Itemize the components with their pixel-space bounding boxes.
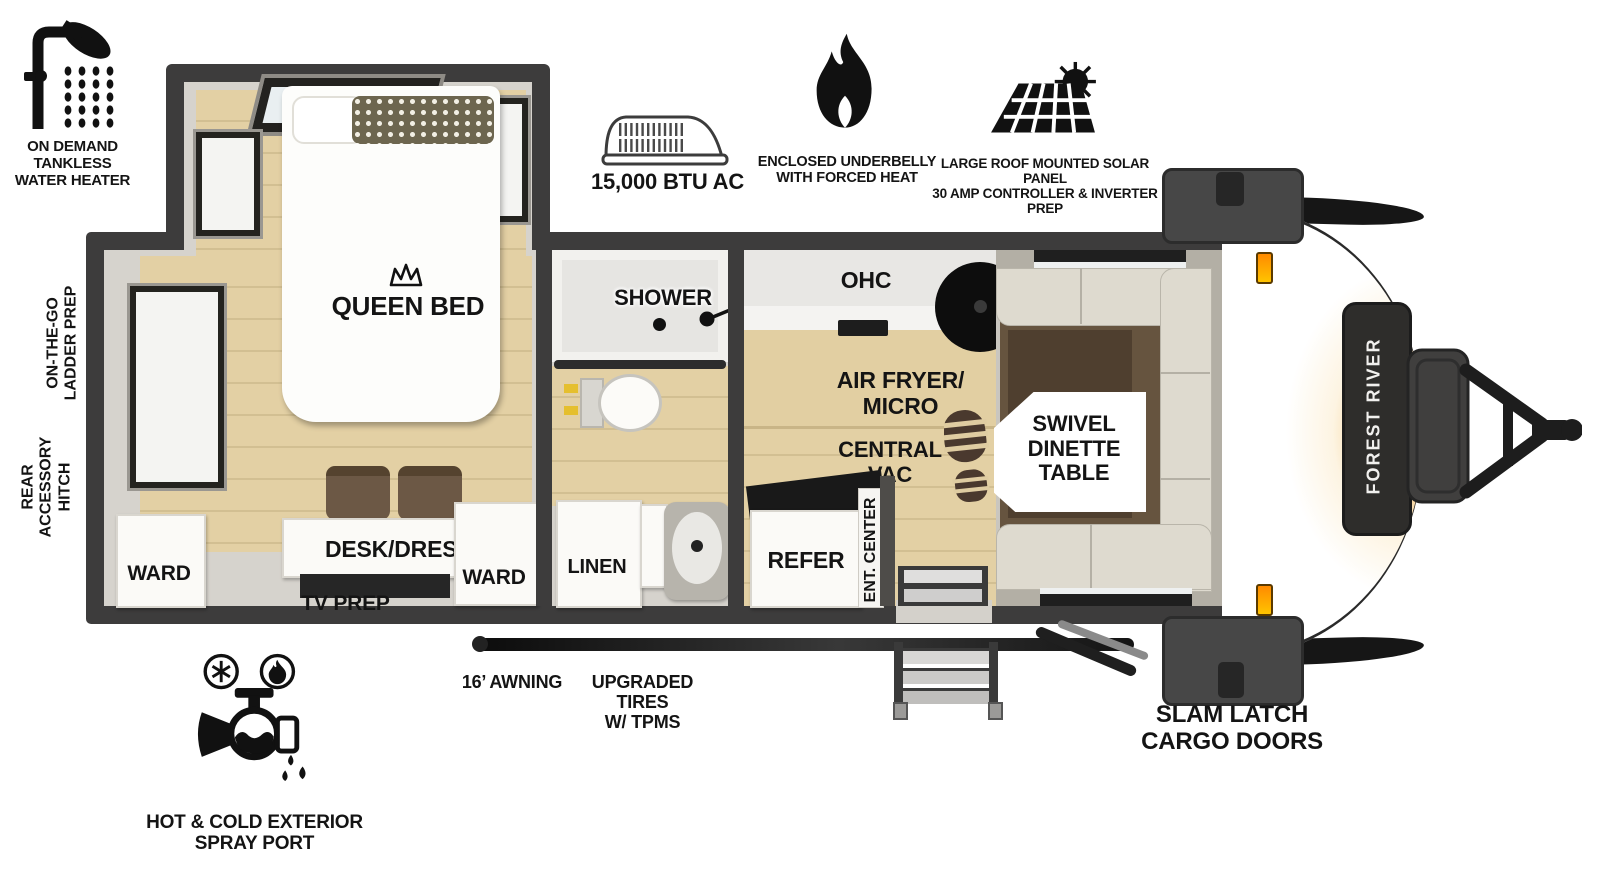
cargo-doors-label: SLAM LATCH CARGO DOORS [1082, 702, 1382, 756]
tankless-water-heater-icon [24, 14, 124, 134]
linen-label: LINEN [558, 556, 636, 578]
queen-bed-label: QUEEN BED [318, 292, 498, 321]
spray-port-icon [196, 650, 322, 790]
step-tread-2 [903, 668, 989, 684]
step-rail-left [894, 642, 903, 704]
step-rail-right [989, 642, 998, 704]
dinette-window-top [1034, 250, 1186, 268]
ent-center-wall [880, 476, 895, 606]
wardrobe-right [454, 502, 538, 606]
ent-center-label: ENT. CENTER [862, 483, 880, 618]
towel-bar-1 [564, 384, 578, 393]
ladder-prep-label: ON-THE-GO LADDER PREP [45, 253, 82, 433]
entry-step-tread-2 [904, 589, 982, 602]
boot-print-icon [944, 408, 990, 504]
dinette-seat-bottom [996, 524, 1212, 590]
ward-right-label: WARD [455, 566, 533, 590]
bedroom-window-left-bumpout [196, 132, 260, 236]
crown-icon [386, 260, 426, 292]
ward-left-label: WARD [118, 562, 200, 586]
forced-heat-flame-icon [806, 30, 884, 142]
brand-text: FOREST RIVER [1364, 337, 1385, 494]
solar-panel-icon [982, 60, 1104, 156]
tires-label: UPGRADED TIRES W/ TPMS [565, 672, 720, 732]
marker-light-bottom [1256, 584, 1273, 616]
wardrobe-left [116, 514, 206, 608]
underbelly-label: ENCLOSED UNDERBELLY WITH FORCED HEAT [752, 154, 942, 186]
water-heater-label: ON DEMAND TANKLESS WATER HEATER [5, 139, 140, 189]
solar-label: LARGE ROOF MOUNTED SOLAR PANEL 30 AMP CO… [930, 156, 1160, 216]
awning-label: 16’ AWNING [452, 672, 572, 692]
ohc-label: OHC [832, 268, 900, 294]
dinette-window-bottom [1040, 588, 1192, 606]
hitch-assembly [1402, 336, 1582, 526]
linen-cabinet [556, 500, 642, 608]
desk-chair-1 [326, 466, 390, 520]
spray-port-label: HOT & COLD EXTERIOR SPRAY PORT [142, 812, 367, 855]
awning-end-cap [472, 636, 488, 652]
step-foot-right [988, 702, 1003, 720]
tv-prep-label: TV PREP [288, 592, 403, 616]
bath-sink-drain [691, 540, 703, 552]
dinette-cushion-seam-1 [1080, 268, 1082, 324]
step-tread-3 [903, 688, 989, 704]
dinette-cushion-seam-4 [1090, 524, 1092, 588]
ac-label: 15,000 BTU AC [575, 170, 760, 195]
rear-hitch-label: REAR ACCESSORY HITCH [19, 407, 74, 567]
bath-kitchen-wall [728, 250, 744, 606]
awning-bar [478, 638, 1134, 651]
towel-bar-2 [564, 406, 578, 415]
cargo-door-bottom-latch [1218, 662, 1244, 698]
floorplan-diagram: ON DEMAND TANKLESS WATER HEATER 15,000 B… [0, 0, 1600, 871]
bedroom-bath-wall [536, 250, 552, 606]
bedroom-window-rear [130, 286, 224, 488]
shower-door [554, 360, 726, 369]
marker-light-top [1256, 252, 1273, 284]
dinette-cushion-seam-2 [1160, 372, 1210, 374]
cooktop [838, 320, 888, 336]
shower-drain [653, 318, 666, 331]
refer-label: REFER [762, 548, 850, 574]
dinette-cushion-seam-3 [1160, 478, 1210, 480]
step-tread-1 [903, 648, 989, 664]
kitchen-sink-drain [974, 300, 987, 313]
cargo-door-top-latch [1216, 172, 1244, 206]
swivel-dinette-label: SWIVEL DINETTE TABLE [1004, 412, 1144, 486]
step-foot-left [893, 702, 908, 720]
ac-unit-icon [598, 106, 733, 168]
entry-step-tread-1 [904, 570, 982, 583]
desk-chair-2 [398, 466, 462, 520]
bed-bolster-pillow [352, 96, 494, 144]
toilet-bowl [598, 374, 662, 432]
